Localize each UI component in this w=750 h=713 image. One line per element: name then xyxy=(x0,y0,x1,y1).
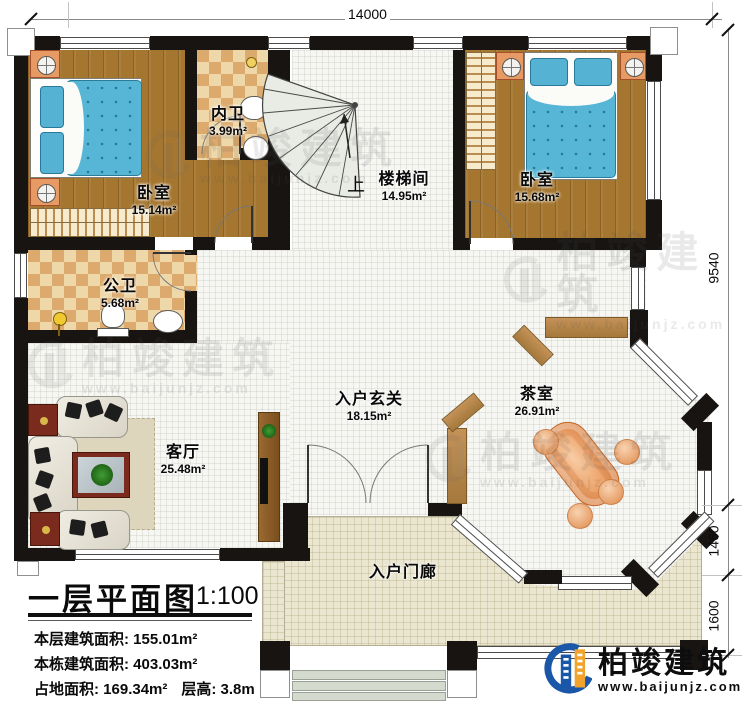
room-label-bedroom-left: 卧室 15.14m² xyxy=(132,179,177,217)
room-area: 26.91m² xyxy=(515,404,560,418)
room-label-bedroom-right: 卧室 15.68m² xyxy=(515,166,560,204)
plan-scale: 1:100 xyxy=(196,582,259,611)
dimension-line-right xyxy=(728,30,729,658)
floor-drain-stem xyxy=(58,324,60,336)
wall-segment xyxy=(453,50,465,238)
floor-height: 层高: 3.8m xyxy=(181,681,254,698)
wall-segment xyxy=(268,50,290,250)
window xyxy=(268,37,310,49)
room-label-stairwell: 楼梯间 14.95m² xyxy=(378,165,429,203)
porch-pier xyxy=(260,641,290,670)
area-line-1: 本层建筑面积: 155.01m² xyxy=(34,628,197,649)
wood-screen xyxy=(545,317,628,338)
wall-segment xyxy=(697,422,712,470)
floor-drain-icon xyxy=(53,312,67,326)
title-rule-thin xyxy=(28,620,252,621)
window xyxy=(647,81,661,200)
tv xyxy=(260,458,268,504)
toilet-tank xyxy=(97,328,129,337)
floor-cushion xyxy=(598,479,624,505)
pillow xyxy=(574,58,612,86)
nightstand xyxy=(30,178,60,206)
room-area: 25.48m² xyxy=(161,462,206,476)
room-area: 15.14m² xyxy=(132,203,177,217)
extension-line xyxy=(702,575,742,576)
sofa-cushion xyxy=(65,402,83,420)
wardrobe xyxy=(466,52,496,170)
room-name: 公卫 xyxy=(101,272,139,296)
brand-logo-icon xyxy=(540,642,592,700)
wall-segment xyxy=(252,237,290,250)
wood-screen xyxy=(447,428,467,504)
room-name: 卧室 xyxy=(515,166,560,190)
sofa-cushion xyxy=(69,519,86,536)
room-label-foyer: 入户玄关 18.15m² xyxy=(335,385,403,423)
wall-pier xyxy=(524,570,562,584)
room-area: 14.95m² xyxy=(378,189,429,203)
sink xyxy=(153,310,183,333)
title-rule xyxy=(28,613,252,617)
ornament-icon xyxy=(40,417,48,425)
room-area: 3.99m² xyxy=(209,124,247,138)
room-label-bath-public: 公卫 5.68m² xyxy=(101,272,139,310)
dimension-top: 14000 xyxy=(345,6,390,22)
brand-name: 柏竣建筑 xyxy=(598,648,742,680)
room-label-tea: 茶室 26.91m² xyxy=(515,380,560,418)
entry-step xyxy=(292,681,446,691)
stairwell-floor xyxy=(292,50,453,250)
room-name: 内卫 xyxy=(209,100,247,124)
room-name: 茶室 xyxy=(515,380,560,404)
wall-segment xyxy=(185,250,197,255)
sink xyxy=(243,136,269,160)
entry-step xyxy=(292,670,446,680)
floor-cushion xyxy=(567,503,593,529)
brand-logo: 柏竣建筑 www.baijunjz.com xyxy=(540,642,742,700)
wall-segment xyxy=(453,238,470,250)
window xyxy=(14,253,27,298)
floor-cushion xyxy=(533,429,559,455)
window xyxy=(631,267,645,310)
extension-line xyxy=(712,2,713,28)
window xyxy=(75,549,220,560)
nightstand xyxy=(620,52,646,80)
end-table xyxy=(28,404,58,436)
bay-window xyxy=(558,576,632,590)
stair-up-label: 上 xyxy=(347,171,365,197)
window xyxy=(60,37,150,49)
wall-segment xyxy=(185,291,197,330)
axis-marker xyxy=(650,27,678,55)
wall-segment xyxy=(150,36,268,50)
room-area: 18.15m² xyxy=(335,409,403,423)
room-area: 15.68m² xyxy=(515,190,560,204)
window xyxy=(413,37,463,49)
room-name: 楼梯间 xyxy=(378,165,429,189)
dimension-right-middle: 1460 xyxy=(706,525,722,556)
area-line-3: 占地面积: 169.34m²层高: 3.8m xyxy=(34,678,269,699)
room-name: 客厅 xyxy=(161,438,206,462)
wall-segment xyxy=(463,36,528,50)
porch-pier xyxy=(447,641,477,670)
wall-segment xyxy=(193,237,215,250)
wall-segment xyxy=(428,503,462,516)
wall-segment xyxy=(14,36,28,253)
coffee-table xyxy=(72,452,130,498)
lamp-icon xyxy=(37,56,56,75)
floor-plan: 14000 9540 1460 1600 卧室 15.14m² 内卫 3.99m… xyxy=(0,0,750,713)
end-table xyxy=(30,512,60,546)
wall-segment xyxy=(14,237,155,250)
extension-line xyxy=(702,505,742,506)
floor-cushion xyxy=(614,439,640,465)
plant xyxy=(262,424,276,438)
wall-segment xyxy=(283,503,308,561)
room-name: 入户门廊 xyxy=(369,558,437,582)
room-area: 5.68m² xyxy=(101,296,139,310)
wall-segment xyxy=(630,250,646,267)
entry-step xyxy=(292,692,446,701)
room-label-living: 客厅 25.48m² xyxy=(161,438,206,476)
porch-floor-left xyxy=(262,561,285,646)
lamp-icon xyxy=(502,58,521,77)
nightstand xyxy=(30,50,60,78)
sofa-cushion xyxy=(34,447,51,464)
pillow xyxy=(530,58,568,86)
room-name: 入户玄关 xyxy=(335,385,403,409)
wall-segment xyxy=(513,238,662,250)
wall-segment xyxy=(310,36,413,50)
ornament-icon xyxy=(42,526,50,534)
extension-line xyxy=(68,2,69,28)
brand-url: www.baijunjz.com xyxy=(598,679,742,694)
dimension-right-top: 9540 xyxy=(706,252,722,283)
plant xyxy=(91,464,113,486)
pillow xyxy=(40,132,64,174)
site-area: 占地面积: 169.34m² xyxy=(34,681,167,698)
towel-ring-icon xyxy=(246,57,257,68)
column-base xyxy=(447,670,477,698)
toilet-tank xyxy=(266,93,277,123)
room-label-porch: 入户门廊 xyxy=(369,558,437,582)
nightstand xyxy=(496,52,524,80)
lamp-icon xyxy=(625,58,644,77)
room-label-bath-inner: 内卫 3.99m² xyxy=(209,100,247,138)
bay-window xyxy=(697,470,712,515)
wall-segment xyxy=(185,50,197,160)
lamp-icon xyxy=(37,184,56,203)
area-line-2: 本栋建筑面积: 403.03m² xyxy=(34,653,197,674)
dimension-right-bottom: 1600 xyxy=(706,600,722,631)
room-name: 卧室 xyxy=(132,179,177,203)
pillow xyxy=(40,86,64,128)
window xyxy=(528,37,627,49)
